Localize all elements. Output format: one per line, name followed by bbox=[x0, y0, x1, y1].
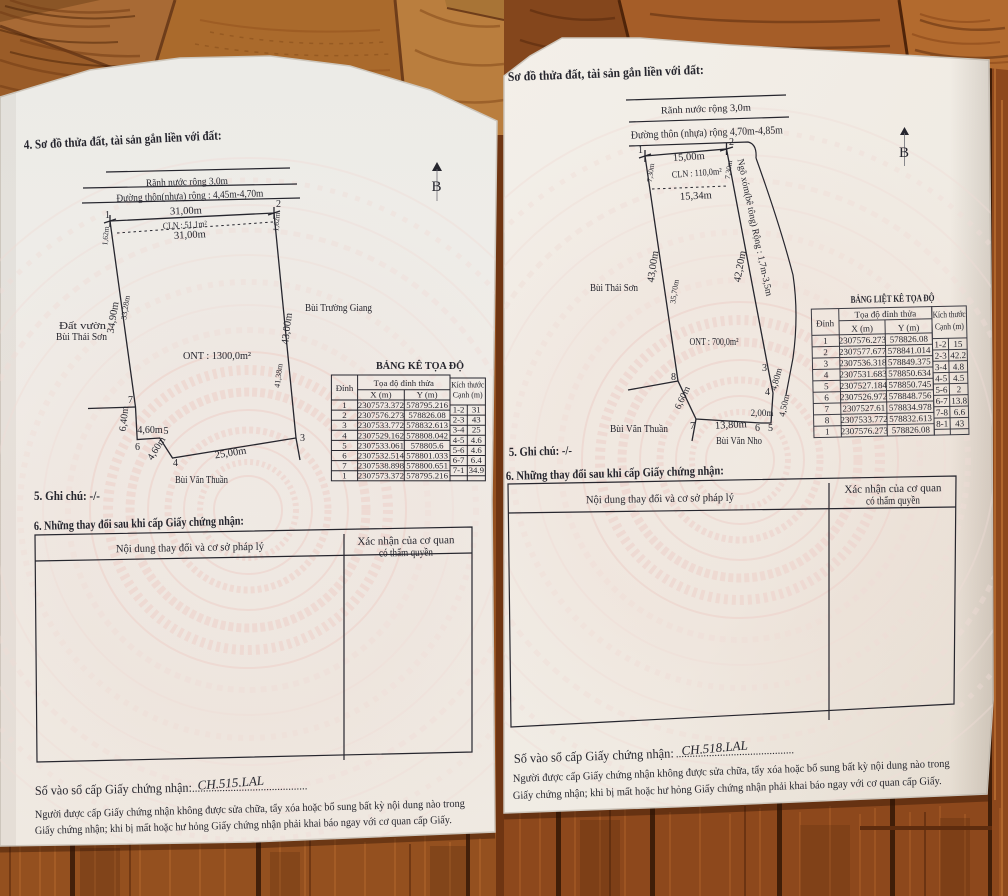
svg-text:6.6: 6.6 bbox=[954, 407, 966, 417]
svg-text:5: 5 bbox=[342, 440, 347, 450]
svg-text:2307533.772: 2307533.772 bbox=[358, 420, 404, 430]
svg-text:3-4: 3-4 bbox=[935, 362, 948, 372]
svg-text:578832.613: 578832.613 bbox=[406, 420, 448, 430]
svg-text:2: 2 bbox=[957, 384, 962, 394]
svg-text:Đỉnh: Đỉnh bbox=[816, 318, 835, 328]
svg-text:578801.033: 578801.033 bbox=[406, 451, 448, 461]
svg-text:Kích thước: Kích thước bbox=[451, 380, 484, 390]
svg-text:2307576.273: 2307576.273 bbox=[841, 425, 889, 436]
svg-text:1-2: 1-2 bbox=[453, 405, 465, 415]
svg-text:6.4: 6.4 bbox=[471, 455, 483, 465]
svg-text:25: 25 bbox=[472, 425, 481, 435]
svg-text:5-6: 5-6 bbox=[453, 445, 465, 455]
svg-text:Tọa độ đỉnh thửa: Tọa độ đỉnh thửa bbox=[854, 308, 916, 319]
svg-text:2307536.318: 2307536.318 bbox=[839, 357, 887, 368]
svg-text:2307576.273: 2307576.273 bbox=[839, 335, 887, 346]
svg-text:BẢNG KÊ TỌA ĐỘ: BẢNG KÊ TỌA ĐỘ bbox=[376, 359, 464, 372]
svg-text:có thẩm quyền: có thẩm quyền bbox=[379, 547, 434, 560]
svg-text:8-1: 8-1 bbox=[936, 419, 948, 429]
svg-text:4: 4 bbox=[824, 370, 829, 380]
svg-text:2,00m: 2,00m bbox=[751, 408, 774, 418]
svg-text:4-5: 4-5 bbox=[935, 373, 948, 383]
svg-text:5. Ghi chú: -/-: 5. Ghi chú: -/- bbox=[509, 443, 572, 459]
svg-text:1: 1 bbox=[105, 210, 110, 221]
svg-text:31,00m: 31,00m bbox=[170, 205, 202, 217]
svg-text:Xác nhận của cơ quan: Xác nhận của cơ quan bbox=[844, 482, 942, 496]
svg-text:3: 3 bbox=[300, 433, 305, 444]
svg-text:5. Ghi chú: -/-: 5. Ghi chú: -/- bbox=[34, 489, 100, 503]
svg-text:7: 7 bbox=[824, 404, 829, 414]
svg-text:2307538.898: 2307538.898 bbox=[358, 461, 405, 471]
svg-text:1: 1 bbox=[638, 145, 643, 156]
svg-text:4.5: 4.5 bbox=[953, 373, 965, 383]
svg-text:6-7: 6-7 bbox=[453, 455, 465, 465]
svg-text:5: 5 bbox=[768, 423, 773, 434]
svg-text:Bùi Văn Nho: Bùi Văn Nho bbox=[716, 436, 762, 447]
svg-text:6-7: 6-7 bbox=[936, 396, 949, 406]
svg-text:8: 8 bbox=[825, 415, 830, 425]
svg-text:Đỉnh: Đỉnh bbox=[336, 383, 354, 393]
svg-text:4: 4 bbox=[342, 430, 347, 440]
svg-text:5: 5 bbox=[164, 426, 169, 437]
svg-text:31: 31 bbox=[472, 405, 481, 415]
svg-text:2307573.372: 2307573.372 bbox=[358, 400, 404, 410]
svg-text:7: 7 bbox=[342, 461, 347, 471]
svg-text:578832.613: 578832.613 bbox=[889, 413, 932, 424]
svg-text:7-1: 7-1 bbox=[453, 465, 465, 475]
svg-text:2307577.677: 2307577.677 bbox=[839, 346, 887, 357]
svg-text:Xác nhận của cơ quan: Xác nhận của cơ quan bbox=[357, 534, 455, 548]
svg-text:4.8: 4.8 bbox=[953, 362, 965, 372]
svg-text:5: 5 bbox=[824, 381, 829, 391]
svg-text:7: 7 bbox=[128, 395, 133, 406]
svg-text:578841.014: 578841.014 bbox=[888, 345, 931, 356]
svg-text:578795.216: 578795.216 bbox=[406, 471, 448, 481]
svg-text:4,60m: 4,60m bbox=[137, 425, 163, 436]
svg-text:3-4: 3-4 bbox=[453, 425, 465, 435]
svg-text:578805.6: 578805.6 bbox=[411, 440, 445, 450]
svg-text:2307527.184: 2307527.184 bbox=[840, 380, 888, 391]
svg-text:578850.745: 578850.745 bbox=[888, 379, 931, 390]
svg-text:1: 1 bbox=[342, 471, 346, 481]
svg-text:Y (m): Y (m) bbox=[898, 322, 920, 332]
svg-text:4-5: 4-5 bbox=[453, 435, 465, 445]
svg-text:3: 3 bbox=[823, 358, 828, 368]
svg-text:Bùi Văn Thuần: Bùi Văn Thuần bbox=[610, 424, 669, 435]
svg-text:3: 3 bbox=[762, 363, 767, 374]
svg-text:2: 2 bbox=[342, 410, 346, 420]
svg-text:1-2: 1-2 bbox=[934, 339, 946, 349]
svg-text:15: 15 bbox=[953, 339, 963, 349]
svg-text:4.6: 4.6 bbox=[471, 445, 483, 455]
svg-text:Cạnh (m): Cạnh (m) bbox=[453, 390, 483, 400]
svg-text:578850.634: 578850.634 bbox=[888, 368, 931, 379]
svg-text:42.2: 42.2 bbox=[950, 350, 966, 360]
svg-text:X (m): X (m) bbox=[370, 390, 391, 400]
svg-text:2307529.162: 2307529.162 bbox=[358, 430, 404, 440]
svg-text:15,34m: 15,34m bbox=[680, 190, 712, 203]
svg-text:Đất vườn: Đất vườn bbox=[59, 321, 107, 332]
svg-text:2-3: 2-3 bbox=[453, 415, 465, 425]
svg-text:Y (m): Y (m) bbox=[417, 390, 438, 400]
svg-text:6: 6 bbox=[755, 423, 760, 434]
svg-text:ONT : 700,0m²: ONT : 700,0m² bbox=[690, 336, 740, 348]
svg-text:578800.651: 578800.651 bbox=[406, 461, 448, 471]
svg-text:5-6: 5-6 bbox=[935, 385, 948, 395]
svg-text:2: 2 bbox=[276, 199, 281, 210]
svg-text:13,80m: 13,80m bbox=[715, 419, 747, 432]
svg-text:Kích thước: Kích thước bbox=[933, 309, 966, 320]
svg-text:có thẩm quyền: có thẩm quyền bbox=[866, 495, 921, 508]
svg-text:43: 43 bbox=[955, 418, 965, 428]
svg-text:2307527.61: 2307527.61 bbox=[842, 403, 885, 414]
svg-text:43: 43 bbox=[472, 415, 481, 425]
svg-text:2307573.372: 2307573.372 bbox=[358, 471, 404, 481]
svg-text:578848.756: 578848.756 bbox=[889, 390, 932, 401]
svg-text:34.9: 34.9 bbox=[469, 465, 485, 475]
svg-text:2307533.772: 2307533.772 bbox=[840, 414, 887, 425]
svg-text:1,62m: 1,62m bbox=[271, 212, 282, 232]
svg-text:31,00m: 31,00m bbox=[174, 229, 206, 242]
svg-text:2: 2 bbox=[823, 347, 828, 357]
svg-text:B: B bbox=[432, 179, 442, 195]
svg-text:Bùi Văn Thuần: Bùi Văn Thuần bbox=[175, 475, 229, 486]
svg-text:2307533.061: 2307533.061 bbox=[358, 440, 404, 450]
svg-text:X (m): X (m) bbox=[851, 323, 873, 333]
svg-text:1: 1 bbox=[342, 400, 346, 410]
svg-text:578849.375: 578849.375 bbox=[888, 356, 931, 367]
svg-text:ONT : 1300,0m²: ONT : 1300,0m² bbox=[183, 350, 252, 362]
svg-text:578826.08: 578826.08 bbox=[408, 410, 446, 420]
svg-text:2307531.683: 2307531.683 bbox=[839, 369, 887, 380]
svg-text:6: 6 bbox=[342, 451, 347, 461]
svg-text:2307532.514: 2307532.514 bbox=[358, 451, 405, 461]
svg-text:1: 1 bbox=[823, 336, 828, 346]
svg-text:578826.08: 578826.08 bbox=[892, 424, 931, 435]
svg-text:15,00m: 15,00m bbox=[673, 151, 705, 164]
svg-text:578795.216: 578795.216 bbox=[406, 400, 448, 410]
svg-text:2-3: 2-3 bbox=[935, 350, 948, 360]
svg-text:7: 7 bbox=[690, 421, 695, 432]
svg-text:2: 2 bbox=[729, 137, 734, 148]
svg-text:2307576.273: 2307576.273 bbox=[358, 410, 405, 420]
svg-text:Bùi Thái Sơn: Bùi Thái Sơn bbox=[56, 332, 108, 343]
svg-text:6: 6 bbox=[824, 392, 829, 402]
svg-text:Bùi Thái Sơn: Bùi Thái Sơn bbox=[590, 283, 639, 294]
svg-text:Cạnh (m): Cạnh (m) bbox=[935, 321, 964, 332]
svg-text:3: 3 bbox=[342, 420, 347, 430]
svg-text:578808.042: 578808.042 bbox=[406, 430, 448, 440]
svg-text:8: 8 bbox=[671, 372, 676, 383]
svg-text:578834.978: 578834.978 bbox=[889, 402, 932, 413]
svg-text:578826.08: 578826.08 bbox=[890, 334, 929, 345]
svg-text:6: 6 bbox=[135, 442, 140, 453]
svg-text:Tọa độ đỉnh thửa: Tọa độ đỉnh thửa bbox=[374, 378, 434, 388]
svg-text:B: B bbox=[899, 145, 909, 161]
svg-text:1,62m: 1,62m bbox=[100, 226, 111, 246]
svg-text:4: 4 bbox=[173, 458, 178, 469]
svg-text:7-8: 7-8 bbox=[936, 407, 949, 417]
svg-text:13.8: 13.8 bbox=[951, 395, 967, 405]
svg-text:2307526.972: 2307526.972 bbox=[840, 391, 887, 402]
svg-text:4.6: 4.6 bbox=[471, 435, 483, 445]
svg-text:Bùi Trường Giang: Bùi Trường Giang bbox=[305, 303, 373, 314]
svg-text:Rãnh nước rộng 3,0m: Rãnh nước rộng 3,0m bbox=[146, 176, 228, 189]
svg-text:1: 1 bbox=[825, 427, 830, 437]
